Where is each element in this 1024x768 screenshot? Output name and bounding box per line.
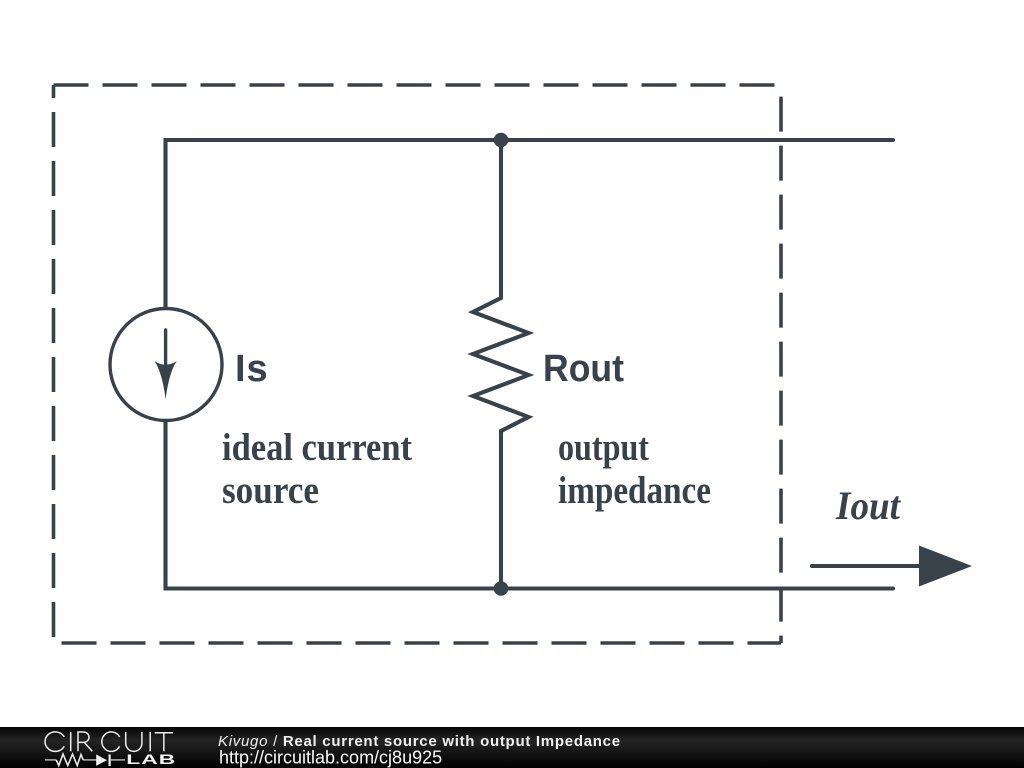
svg-text:source: source	[222, 469, 319, 512]
svg-text:output: output	[558, 426, 649, 469]
svg-text:Is: Is	[235, 348, 269, 390]
svg-text:LAB: LAB	[126, 752, 176, 767]
svg-text:ideal current: ideal current	[222, 426, 412, 469]
svg-text:Rout: Rout	[543, 348, 624, 390]
svg-text:Iout: Iout	[835, 483, 902, 528]
svg-text:impedance: impedance	[558, 469, 711, 512]
svg-text:http://circuitlab.com/cj8u925: http://circuitlab.com/cj8u925	[219, 747, 442, 767]
